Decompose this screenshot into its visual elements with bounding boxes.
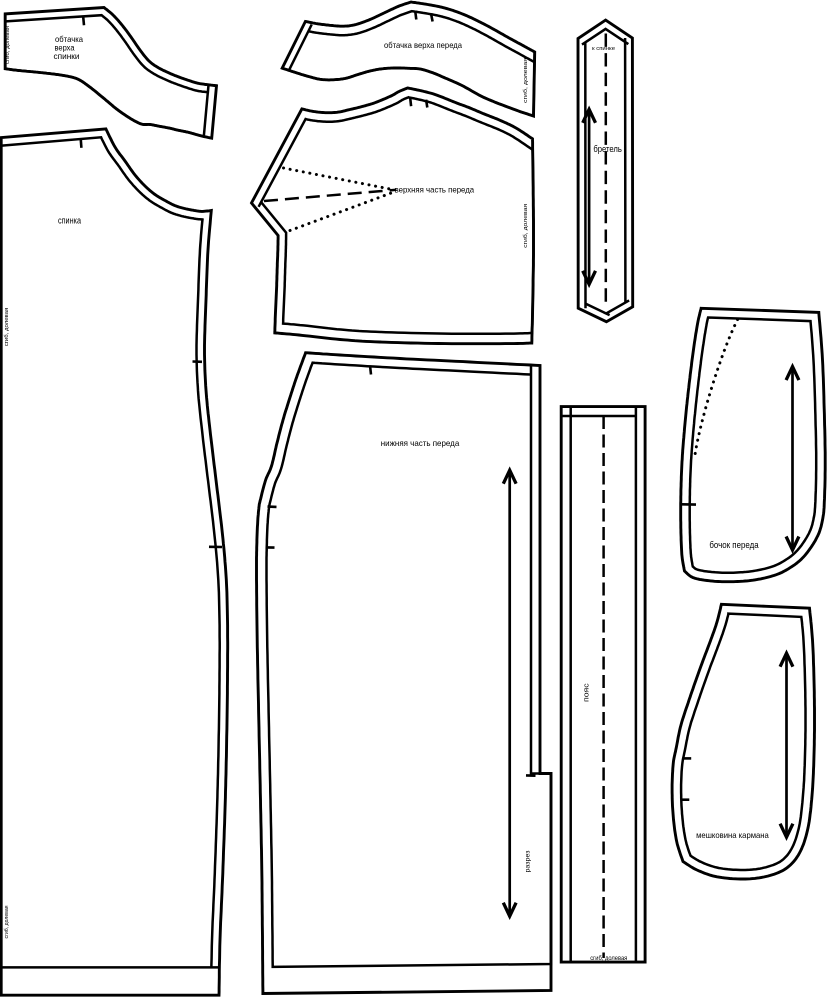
svg-text:бочок переда: бочок переда <box>709 540 758 550</box>
svg-text:мешковина кармана: мешковина кармана <box>696 830 769 840</box>
svg-text:пояс: пояс <box>584 683 591 702</box>
svg-text:сгиб, долевая: сгиб, долевая <box>4 906 10 939</box>
svg-text:нижняя часть переда: нижняя часть переда <box>381 438 460 448</box>
svg-text:сгиб, долевая: сгиб, долевая <box>4 308 10 347</box>
svg-text:к спинке: к спинке <box>592 46 615 52</box>
svg-text:спинка: спинка <box>58 216 81 226</box>
svg-text:сгиб, долевая: сгиб, долевая <box>5 26 11 64</box>
svg-text:обтачка верха переда: обтачка верха переда <box>384 40 462 50</box>
svg-text:верхняя часть переда: верхняя часть переда <box>395 184 475 194</box>
svg-text:сгиб, долевая: сгиб, долевая <box>523 204 529 248</box>
svg-text:разрез: разрез <box>525 850 532 872</box>
svg-text:сгиб, долевая: сгиб, долевая <box>590 956 627 962</box>
svg-text:бретель: бретель <box>593 144 622 154</box>
svg-text:сгиб, долевая: сгиб, долевая <box>523 58 529 103</box>
svg-text:спинки: спинки <box>54 52 80 61</box>
